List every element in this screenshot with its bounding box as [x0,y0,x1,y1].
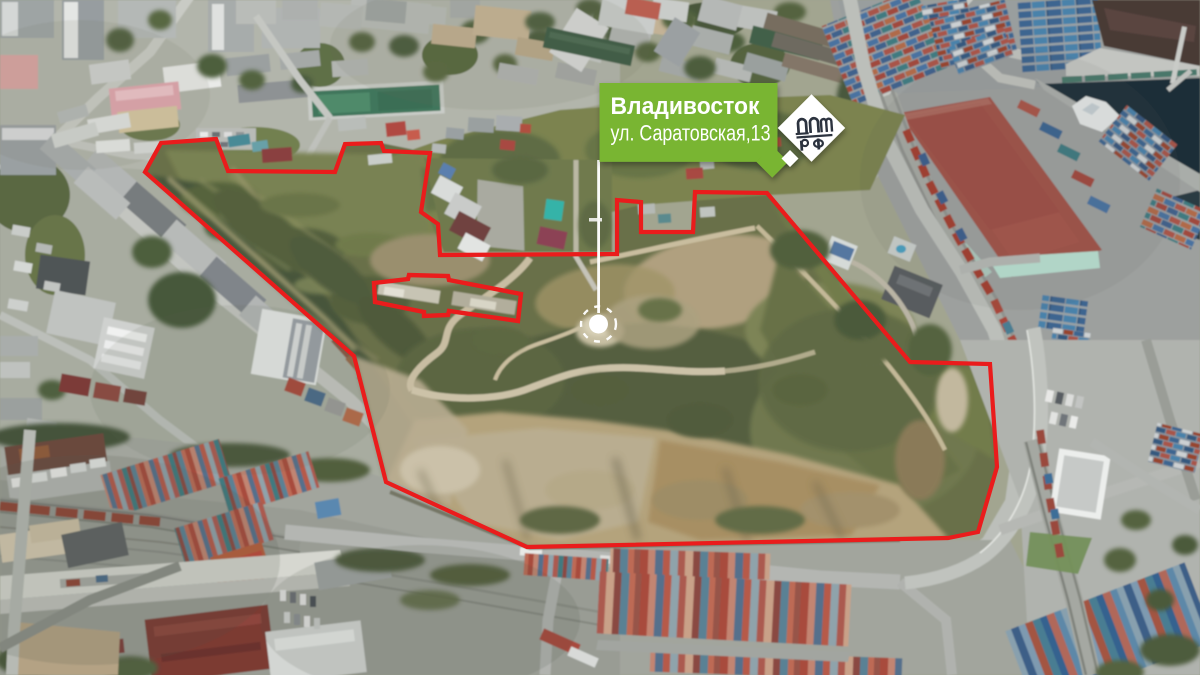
svg-text:ул. Саратовская,13: ул. Саратовская,13 [611,121,771,146]
svg-text:Владивосток: Владивосток [611,93,761,120]
